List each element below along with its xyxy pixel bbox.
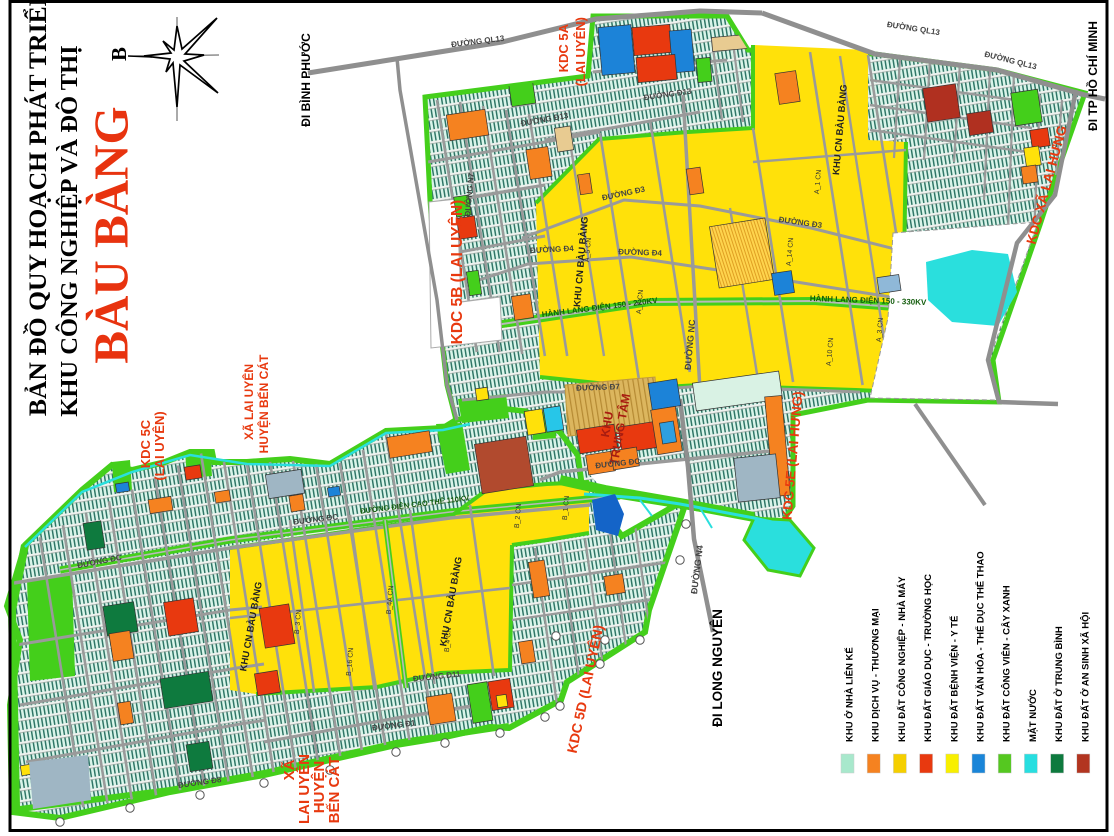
svg-text:KHU CÔNG NGHIỆP VÀ ĐÔ THỊ: KHU CÔNG NGHIỆP VÀ ĐÔ THỊ — [54, 45, 83, 416]
svg-text:KHU ĐẤT BỆNH VIỆN - Y TẾ: KHU ĐẤT BỆNH VIỆN - Y TẾ — [948, 616, 960, 742]
svg-text:ĐI TP HỒ CHÍ MINH: ĐI TP HỒ CHÍ MINH — [1085, 21, 1100, 131]
svg-text:KHU DỊCH VỤ - THƯƠNG MẠI: KHU DỊCH VỤ - THƯƠNG MẠI — [871, 608, 882, 742]
svg-text:KHU ĐẤT CÔNG NGHIỆP - NHÀ MÁY: KHU ĐẤT CÔNG NGHIỆP - NHÀ MÁY — [896, 576, 908, 742]
svg-text:ĐƯỜNG Đ4: ĐƯỜNG Đ4 — [618, 247, 663, 258]
svg-text:ĐƯỜNG Đ7: ĐƯỜNG Đ7 — [576, 382, 621, 393]
svg-text:B: B — [107, 47, 131, 61]
svg-text:KHU ĐẤT CÔNG VIÊN - CÂY XANH: KHU ĐẤT CÔNG VIÊN - CÂY XANH — [1001, 585, 1013, 742]
svg-text:KDC 5A: KDC 5A — [556, 23, 571, 72]
svg-text:KHU Ở NHÀ LIÊN KẾ: KHU Ở NHÀ LIÊN KẾ — [844, 647, 856, 742]
svg-text:KHU ĐẤT Ở AN SINH XÃ HỘI: KHU ĐẤT Ở AN SINH XÃ HỘI — [1079, 612, 1091, 742]
svg-text:(LAI UYÊN): (LAI UYÊN) — [152, 411, 167, 480]
svg-text:KHU ĐẤT GIÁO DỤC - TRƯỜNG HỌC: KHU ĐẤT GIÁO DỤC - TRƯỜNG HỌC — [922, 574, 934, 742]
svg-text:BẢN ĐỒ QUY HOẠCH PHÁT TRIỂN: BẢN ĐỒ QUY HOẠCH PHÁT TRIỂN — [23, 0, 52, 416]
svg-text:(LAI UYÊN): (LAI UYÊN) — [573, 17, 588, 86]
svg-text:KHU ĐẤT VĂN HÓA - THỂ DỤC THỂ: KHU ĐẤT VĂN HÓA - THỂ DỤC THỂ THAO — [975, 551, 987, 742]
svg-text:XÃ LAI UYÊN: XÃ LAI UYÊN — [241, 364, 256, 440]
svg-text:HUYỆN BẾN CÁT: HUYỆN BẾN CÁT — [256, 354, 271, 453]
svg-text:KDC 5C: KDC 5C — [138, 419, 153, 468]
svg-text:ĐI LONG NGUYÊN: ĐI LONG NGUYÊN — [710, 609, 725, 727]
svg-text:KDC 5B (LAI UYÊN): KDC 5B (LAI UYÊN) — [448, 200, 466, 345]
svg-text:BẾN CÁT: BẾN CÁT — [326, 757, 343, 824]
svg-text:MẶT NƯỚC: MẶT NƯỚC — [1027, 689, 1039, 742]
svg-text:KHU ĐẤT Ở TRUNG BÌNH: KHU ĐẤT Ở TRUNG BÌNH — [1053, 626, 1065, 742]
svg-text:ĐI BÌNH PHƯỚC: ĐI BÌNH PHƯỚC — [298, 33, 313, 127]
svg-text:BÀU BÀNG: BÀU BÀNG — [84, 106, 139, 363]
